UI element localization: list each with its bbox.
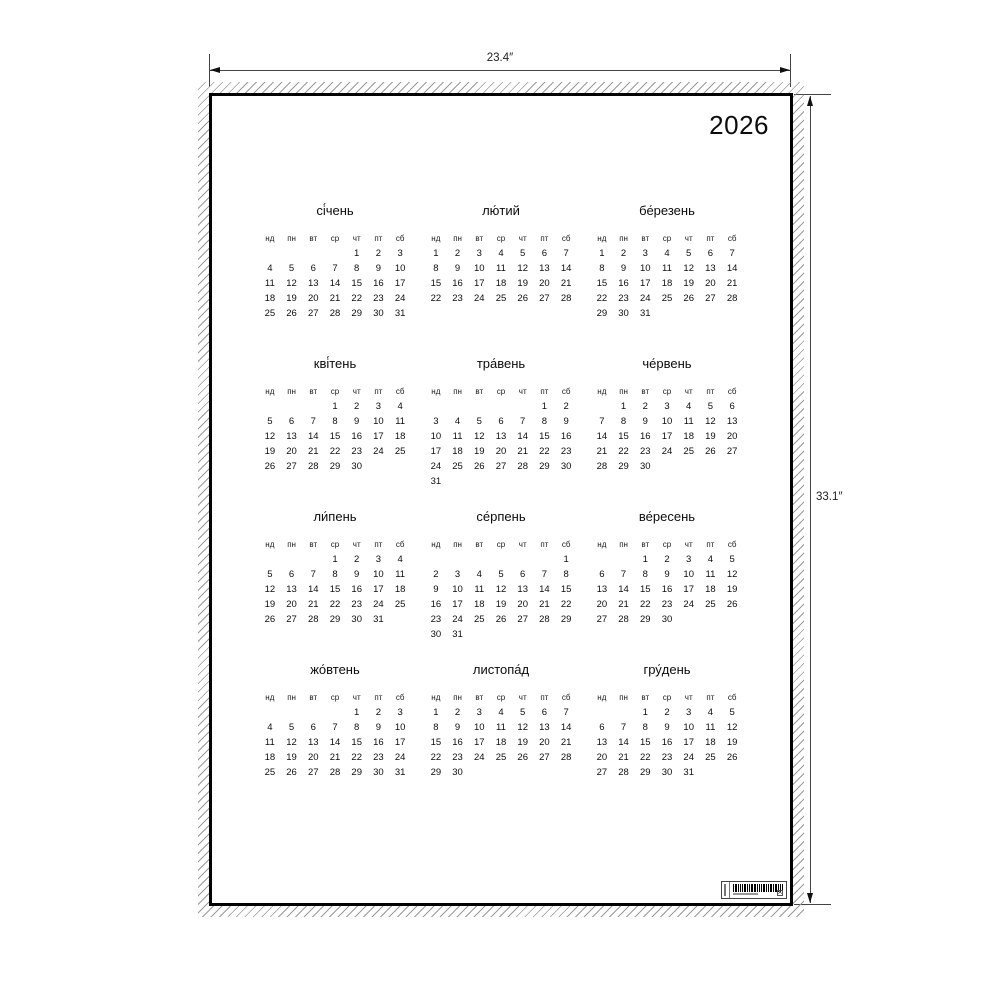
weekday-header-cell: пт bbox=[368, 538, 390, 551]
day-cell: 14 bbox=[512, 429, 534, 444]
day-cell bbox=[490, 627, 512, 642]
week-row: 293031 bbox=[591, 306, 743, 321]
day-cell: 6 bbox=[281, 414, 303, 429]
day-cell: 24 bbox=[656, 444, 678, 459]
day-cell bbox=[591, 552, 613, 567]
weekday-header-cell: ср bbox=[490, 385, 512, 398]
day-cell: 16 bbox=[613, 276, 635, 291]
day-cell: 12 bbox=[512, 720, 534, 735]
week-row: 15161718192021 bbox=[425, 735, 577, 750]
weekday-header-cell: пн bbox=[613, 385, 635, 398]
week-row: 123 bbox=[259, 246, 411, 261]
day-cell: 16 bbox=[346, 429, 368, 444]
day-cell bbox=[490, 399, 512, 414]
week-row: 1234 bbox=[259, 552, 411, 567]
day-cell: 24 bbox=[389, 750, 411, 765]
day-cell: 21 bbox=[534, 597, 556, 612]
day-cell: 12 bbox=[281, 735, 303, 750]
day-cell: 28 bbox=[512, 459, 534, 474]
day-cell: 23 bbox=[447, 291, 469, 306]
month-block: жо́втеньндпнвтсрчтптсб123456789101112131… bbox=[259, 662, 411, 815]
day-cell: 7 bbox=[613, 567, 635, 582]
day-cell: 23 bbox=[425, 612, 447, 627]
day-cell: 12 bbox=[700, 414, 722, 429]
weekday-header-row: ндпнвтсрчтптсб bbox=[259, 691, 411, 704]
weekday-header-cell: сб bbox=[389, 385, 411, 398]
weekday-header-cell: вт bbox=[634, 691, 656, 704]
day-cell: 23 bbox=[656, 597, 678, 612]
day-cell: 31 bbox=[389, 765, 411, 780]
day-cell: 17 bbox=[468, 276, 490, 291]
barcode-bar bbox=[770, 884, 772, 892]
day-cell: 19 bbox=[259, 597, 281, 612]
week-row: 18192021222324 bbox=[259, 750, 411, 765]
day-cell: 13 bbox=[591, 735, 613, 750]
weekday-header-cell: сб bbox=[555, 232, 577, 245]
month-title: ли́пень bbox=[259, 509, 411, 525]
day-cell bbox=[555, 765, 577, 780]
day-cell: 3 bbox=[678, 705, 700, 720]
week-row: 19202122232425 bbox=[259, 597, 411, 612]
day-cell: 8 bbox=[346, 720, 368, 735]
barcode-bar bbox=[757, 884, 758, 892]
day-cell: 6 bbox=[534, 246, 556, 261]
week-row: 22232425262728 bbox=[425, 750, 577, 765]
weekday-header-cell: вт bbox=[634, 538, 656, 551]
day-cell: 9 bbox=[425, 582, 447, 597]
weekday-header-cell: чт bbox=[512, 232, 534, 245]
month-title: сі́чень bbox=[259, 203, 411, 219]
day-cell: 9 bbox=[346, 414, 368, 429]
day-cell: 6 bbox=[281, 567, 303, 582]
weekday-header-cell: нд bbox=[591, 385, 613, 398]
week-row: 20212223242526 bbox=[591, 750, 743, 765]
day-cell: 25 bbox=[656, 291, 678, 306]
day-cell: 17 bbox=[678, 735, 700, 750]
day-cell: 28 bbox=[613, 612, 635, 627]
weekday-header-cell: нд bbox=[259, 538, 281, 551]
weekday-header-cell: чт bbox=[512, 691, 534, 704]
day-cell: 14 bbox=[613, 735, 635, 750]
weekday-header-cell: сб bbox=[555, 538, 577, 551]
weekday-header-cell: чт bbox=[512, 538, 534, 551]
day-cell: 17 bbox=[389, 735, 411, 750]
day-cell bbox=[302, 705, 324, 720]
day-cell: 15 bbox=[346, 276, 368, 291]
dim-arrow-left-icon bbox=[210, 67, 220, 73]
week-row: 20212223242526 bbox=[591, 597, 743, 612]
day-cell: 9 bbox=[368, 720, 390, 735]
day-cell bbox=[468, 765, 490, 780]
day-cell: 1 bbox=[634, 705, 656, 720]
day-cell: 21 bbox=[613, 750, 635, 765]
month-title: бе́резень bbox=[591, 203, 743, 219]
day-cell: 18 bbox=[678, 429, 700, 444]
weekday-header-cell: пт bbox=[700, 232, 722, 245]
day-cell: 2 bbox=[368, 705, 390, 720]
day-cell: 29 bbox=[425, 765, 447, 780]
weekday-header-cell: нд bbox=[259, 385, 281, 398]
day-cell: 10 bbox=[656, 414, 678, 429]
weekday-header-cell: нд bbox=[425, 538, 447, 551]
day-cell: 16 bbox=[656, 735, 678, 750]
week-row: 123456 bbox=[591, 399, 743, 414]
day-cell: 16 bbox=[555, 429, 577, 444]
day-cell: 26 bbox=[512, 750, 534, 765]
week-row: 25262728293031 bbox=[259, 765, 411, 780]
month-block: ли́пеньндпнвтсрчтптсб1234567891011121314… bbox=[259, 509, 411, 662]
day-cell: 8 bbox=[324, 414, 346, 429]
day-cell: 11 bbox=[490, 720, 512, 735]
weekday-header-cell: ср bbox=[656, 385, 678, 398]
weekday-header-cell: пт bbox=[368, 385, 390, 398]
barcode-bar bbox=[773, 884, 774, 892]
day-cell: 10 bbox=[678, 720, 700, 735]
weekday-header-cell: сб bbox=[389, 691, 411, 704]
day-cell: 8 bbox=[346, 261, 368, 276]
day-cell: 4 bbox=[447, 414, 469, 429]
day-cell: 15 bbox=[346, 735, 368, 750]
week-row: 1234567 bbox=[591, 246, 743, 261]
day-cell: 21 bbox=[302, 444, 324, 459]
barcode-bar bbox=[759, 884, 760, 892]
day-cell bbox=[534, 552, 556, 567]
week-row: 12131415161718 bbox=[259, 429, 411, 444]
week-row: 9101112131415 bbox=[425, 582, 577, 597]
day-cell: 13 bbox=[721, 414, 743, 429]
month-title: кві́тень bbox=[259, 356, 411, 372]
weekday-header-cell: сб bbox=[555, 385, 577, 398]
day-cell: 17 bbox=[368, 582, 390, 597]
day-cell bbox=[656, 306, 678, 321]
day-cell: 31 bbox=[368, 612, 390, 627]
day-cell: 20 bbox=[281, 444, 303, 459]
week-row: 2930 bbox=[425, 765, 577, 780]
day-cell: 21 bbox=[591, 444, 613, 459]
weekday-header-row: ндпнвтсрчтптсб bbox=[425, 691, 577, 704]
day-cell: 29 bbox=[324, 459, 346, 474]
day-cell: 7 bbox=[302, 567, 324, 582]
day-cell: 12 bbox=[721, 720, 743, 735]
day-cell bbox=[281, 705, 303, 720]
week-row: 1234567 bbox=[425, 246, 577, 261]
weekday-header-row: ндпнвтсрчтптсб bbox=[259, 538, 411, 551]
barcode-bar bbox=[749, 884, 750, 892]
day-cell: 6 bbox=[700, 246, 722, 261]
barcode-sticker-side bbox=[722, 882, 730, 898]
day-cell: 27 bbox=[281, 459, 303, 474]
day-cell: 31 bbox=[678, 765, 700, 780]
day-cell: 2 bbox=[425, 567, 447, 582]
week-row: 18192021222324 bbox=[259, 291, 411, 306]
day-cell: 27 bbox=[591, 765, 613, 780]
day-cell: 2 bbox=[447, 246, 469, 261]
month-title: листопа́д bbox=[425, 662, 577, 678]
day-cell: 31 bbox=[425, 474, 447, 489]
day-cell: 5 bbox=[468, 414, 490, 429]
month-block: бе́резеньндпнвтсрчтптсб12345678910111213… bbox=[591, 203, 743, 356]
week-row: 3031 bbox=[425, 627, 577, 642]
day-cell: 19 bbox=[468, 444, 490, 459]
day-cell: 11 bbox=[259, 735, 281, 750]
day-cell: 22 bbox=[613, 444, 635, 459]
day-cell: 26 bbox=[468, 459, 490, 474]
week-row: 567891011 bbox=[259, 414, 411, 429]
day-cell: 18 bbox=[468, 597, 490, 612]
weekday-header-cell: ср bbox=[490, 232, 512, 245]
weekday-header-cell: ср bbox=[656, 691, 678, 704]
day-cell: 4 bbox=[490, 246, 512, 261]
day-cell: 15 bbox=[634, 582, 656, 597]
day-cell: 27 bbox=[490, 459, 512, 474]
day-cell: 13 bbox=[700, 261, 722, 276]
day-cell: 18 bbox=[700, 735, 722, 750]
day-cell: 6 bbox=[302, 261, 324, 276]
weekday-header-cell: ср bbox=[490, 691, 512, 704]
day-cell: 4 bbox=[656, 246, 678, 261]
day-cell bbox=[468, 399, 490, 414]
day-cell: 7 bbox=[591, 414, 613, 429]
weekday-header-cell: сб bbox=[721, 232, 743, 245]
day-cell: 26 bbox=[490, 612, 512, 627]
day-cell: 20 bbox=[721, 429, 743, 444]
day-cell: 1 bbox=[555, 552, 577, 567]
day-cell: 4 bbox=[468, 567, 490, 582]
day-cell bbox=[700, 306, 722, 321]
week-row: 16171819202122 bbox=[425, 597, 577, 612]
month-title: лю́тий bbox=[425, 203, 577, 219]
day-cell: 17 bbox=[447, 597, 469, 612]
day-cell: 18 bbox=[447, 444, 469, 459]
day-cell: 26 bbox=[259, 459, 281, 474]
day-cell: 11 bbox=[259, 276, 281, 291]
day-cell: 30 bbox=[447, 765, 469, 780]
day-cell: 24 bbox=[468, 291, 490, 306]
day-cell: 12 bbox=[678, 261, 700, 276]
day-cell: 22 bbox=[634, 597, 656, 612]
day-cell: 7 bbox=[613, 720, 635, 735]
day-cell: 2 bbox=[555, 399, 577, 414]
day-cell: 26 bbox=[700, 444, 722, 459]
month-title: се́рпень bbox=[425, 509, 577, 525]
barcode-bar bbox=[733, 884, 734, 892]
day-cell: 30 bbox=[368, 765, 390, 780]
day-cell: 28 bbox=[721, 291, 743, 306]
day-cell: 30 bbox=[656, 765, 678, 780]
day-cell: 12 bbox=[281, 276, 303, 291]
weekday-header-row: ндпнвтсрчтптсб bbox=[425, 232, 577, 245]
day-cell bbox=[591, 399, 613, 414]
weekday-header-cell: ср bbox=[490, 538, 512, 551]
week-row: 1 bbox=[425, 552, 577, 567]
weekday-header-cell: пн bbox=[281, 691, 303, 704]
day-cell: 18 bbox=[389, 582, 411, 597]
day-cell: 7 bbox=[302, 414, 324, 429]
day-cell: 8 bbox=[613, 414, 635, 429]
day-cell: 14 bbox=[721, 261, 743, 276]
day-cell: 5 bbox=[512, 705, 534, 720]
day-cell: 3 bbox=[634, 246, 656, 261]
day-cell: 25 bbox=[700, 750, 722, 765]
day-cell: 1 bbox=[591, 246, 613, 261]
day-cell: 24 bbox=[468, 750, 490, 765]
month-title: ве́ресень bbox=[591, 509, 743, 525]
day-cell: 3 bbox=[389, 705, 411, 720]
day-cell: 2 bbox=[368, 246, 390, 261]
month-block: лю́тийндпнвтсрчтптсб12345678910111213141… bbox=[425, 203, 577, 356]
barcode-bar bbox=[754, 884, 756, 892]
day-cell: 23 bbox=[346, 444, 368, 459]
barcode-bar bbox=[763, 884, 765, 892]
day-cell: 13 bbox=[302, 735, 324, 750]
year-title: 2026 bbox=[709, 112, 769, 138]
day-cell: 14 bbox=[555, 261, 577, 276]
day-cell: 16 bbox=[656, 582, 678, 597]
day-cell: 31 bbox=[634, 306, 656, 321]
day-cell bbox=[512, 552, 534, 567]
day-cell bbox=[302, 399, 324, 414]
dim-line-width bbox=[210, 70, 790, 71]
day-cell: 7 bbox=[555, 705, 577, 720]
week-row: 11121314151617 bbox=[259, 735, 411, 750]
day-cell bbox=[678, 459, 700, 474]
month-title: тра́вень bbox=[425, 356, 577, 372]
barcode-bar bbox=[735, 884, 737, 892]
week-row: 2345678 bbox=[425, 567, 577, 582]
weekday-header-cell: вт bbox=[302, 691, 324, 704]
day-cell: 12 bbox=[490, 582, 512, 597]
day-cell: 2 bbox=[447, 705, 469, 720]
day-cell: 28 bbox=[302, 612, 324, 627]
day-cell bbox=[389, 612, 411, 627]
day-cell: 27 bbox=[721, 444, 743, 459]
day-cell bbox=[302, 552, 324, 567]
day-cell: 30 bbox=[368, 306, 390, 321]
day-cell bbox=[281, 552, 303, 567]
week-row: 6789101112 bbox=[591, 567, 743, 582]
day-cell: 20 bbox=[591, 750, 613, 765]
day-cell: 5 bbox=[281, 261, 303, 276]
day-cell: 3 bbox=[468, 246, 490, 261]
day-cell: 5 bbox=[281, 720, 303, 735]
day-cell: 7 bbox=[534, 567, 556, 582]
day-cell: 5 bbox=[512, 246, 534, 261]
hatched-bleed-border: 2026 сі́ченьндпнвтсрчтптсб12345678910111… bbox=[198, 82, 804, 917]
day-cell bbox=[700, 612, 722, 627]
day-cell: 20 bbox=[302, 291, 324, 306]
weekday-header-cell: пн bbox=[613, 691, 635, 704]
day-cell: 14 bbox=[302, 429, 324, 444]
day-cell: 19 bbox=[721, 735, 743, 750]
day-cell: 22 bbox=[324, 444, 346, 459]
day-cell bbox=[512, 627, 534, 642]
day-cell: 7 bbox=[324, 720, 346, 735]
day-cell: 18 bbox=[656, 276, 678, 291]
day-cell: 9 bbox=[656, 567, 678, 582]
weekday-header-cell: пт bbox=[534, 232, 556, 245]
day-cell: 28 bbox=[591, 459, 613, 474]
height-dimension-label: 33.1″ bbox=[816, 491, 842, 503]
week-row: 2627282930 bbox=[259, 459, 411, 474]
day-cell: 18 bbox=[700, 582, 722, 597]
day-cell: 14 bbox=[302, 582, 324, 597]
day-cell: 15 bbox=[534, 429, 556, 444]
day-cell: 3 bbox=[678, 552, 700, 567]
week-row: 78910111213 bbox=[591, 414, 743, 429]
day-cell: 1 bbox=[346, 246, 368, 261]
day-cell: 30 bbox=[656, 612, 678, 627]
day-cell: 3 bbox=[389, 246, 411, 261]
day-cell: 30 bbox=[613, 306, 635, 321]
weekday-header-cell: чт bbox=[678, 385, 700, 398]
day-cell bbox=[468, 552, 490, 567]
day-cell: 9 bbox=[447, 261, 469, 276]
day-cell: 3 bbox=[447, 567, 469, 582]
day-cell: 19 bbox=[490, 597, 512, 612]
day-cell: 12 bbox=[468, 429, 490, 444]
day-cell bbox=[302, 246, 324, 261]
day-cell: 5 bbox=[490, 567, 512, 582]
barcode-bar bbox=[740, 884, 741, 892]
day-cell: 15 bbox=[324, 429, 346, 444]
weekday-header-cell: вт bbox=[302, 538, 324, 551]
day-cell: 15 bbox=[591, 276, 613, 291]
day-cell: 21 bbox=[555, 276, 577, 291]
day-cell bbox=[281, 246, 303, 261]
day-cell: 20 bbox=[512, 597, 534, 612]
width-dimension-label: 23.4″ bbox=[450, 52, 550, 64]
day-cell: 28 bbox=[324, 306, 346, 321]
day-cell: 28 bbox=[555, 750, 577, 765]
day-cell: 8 bbox=[425, 261, 447, 276]
week-row: 1234 bbox=[259, 399, 411, 414]
day-cell: 24 bbox=[368, 444, 390, 459]
day-cell: 29 bbox=[324, 612, 346, 627]
weekday-header-cell: нд bbox=[259, 691, 281, 704]
day-cell bbox=[324, 246, 346, 261]
day-cell: 2 bbox=[656, 705, 678, 720]
day-cell bbox=[490, 765, 512, 780]
day-cell: 22 bbox=[425, 291, 447, 306]
month-block: тра́веньндпнвтсрчтптсб123456789101112131… bbox=[425, 356, 577, 509]
day-cell: 6 bbox=[534, 705, 556, 720]
day-cell: 5 bbox=[721, 552, 743, 567]
month-block: се́рпеньндпнвтсрчтптсб123456789101112131… bbox=[425, 509, 577, 662]
day-cell: 14 bbox=[534, 582, 556, 597]
day-cell: 1 bbox=[634, 552, 656, 567]
day-cell: 15 bbox=[555, 582, 577, 597]
day-cell: 5 bbox=[700, 399, 722, 414]
day-cell: 29 bbox=[634, 765, 656, 780]
day-cell: 18 bbox=[389, 429, 411, 444]
weekday-header-cell: пт bbox=[368, 232, 390, 245]
week-row: 3456789 bbox=[425, 414, 577, 429]
weekday-header-cell: пт bbox=[534, 691, 556, 704]
weekday-header-cell: пн bbox=[613, 538, 635, 551]
day-cell bbox=[490, 552, 512, 567]
day-cell: 25 bbox=[259, 306, 281, 321]
month-title: жо́втень bbox=[259, 662, 411, 678]
day-cell: 16 bbox=[368, 276, 390, 291]
day-cell: 1 bbox=[425, 246, 447, 261]
day-cell: 22 bbox=[346, 291, 368, 306]
weekday-header-cell: вт bbox=[468, 232, 490, 245]
day-cell bbox=[324, 705, 346, 720]
weekday-header-cell: нд bbox=[591, 538, 613, 551]
day-cell: 1 bbox=[324, 552, 346, 567]
day-cell: 25 bbox=[468, 612, 490, 627]
day-cell: 7 bbox=[512, 414, 534, 429]
